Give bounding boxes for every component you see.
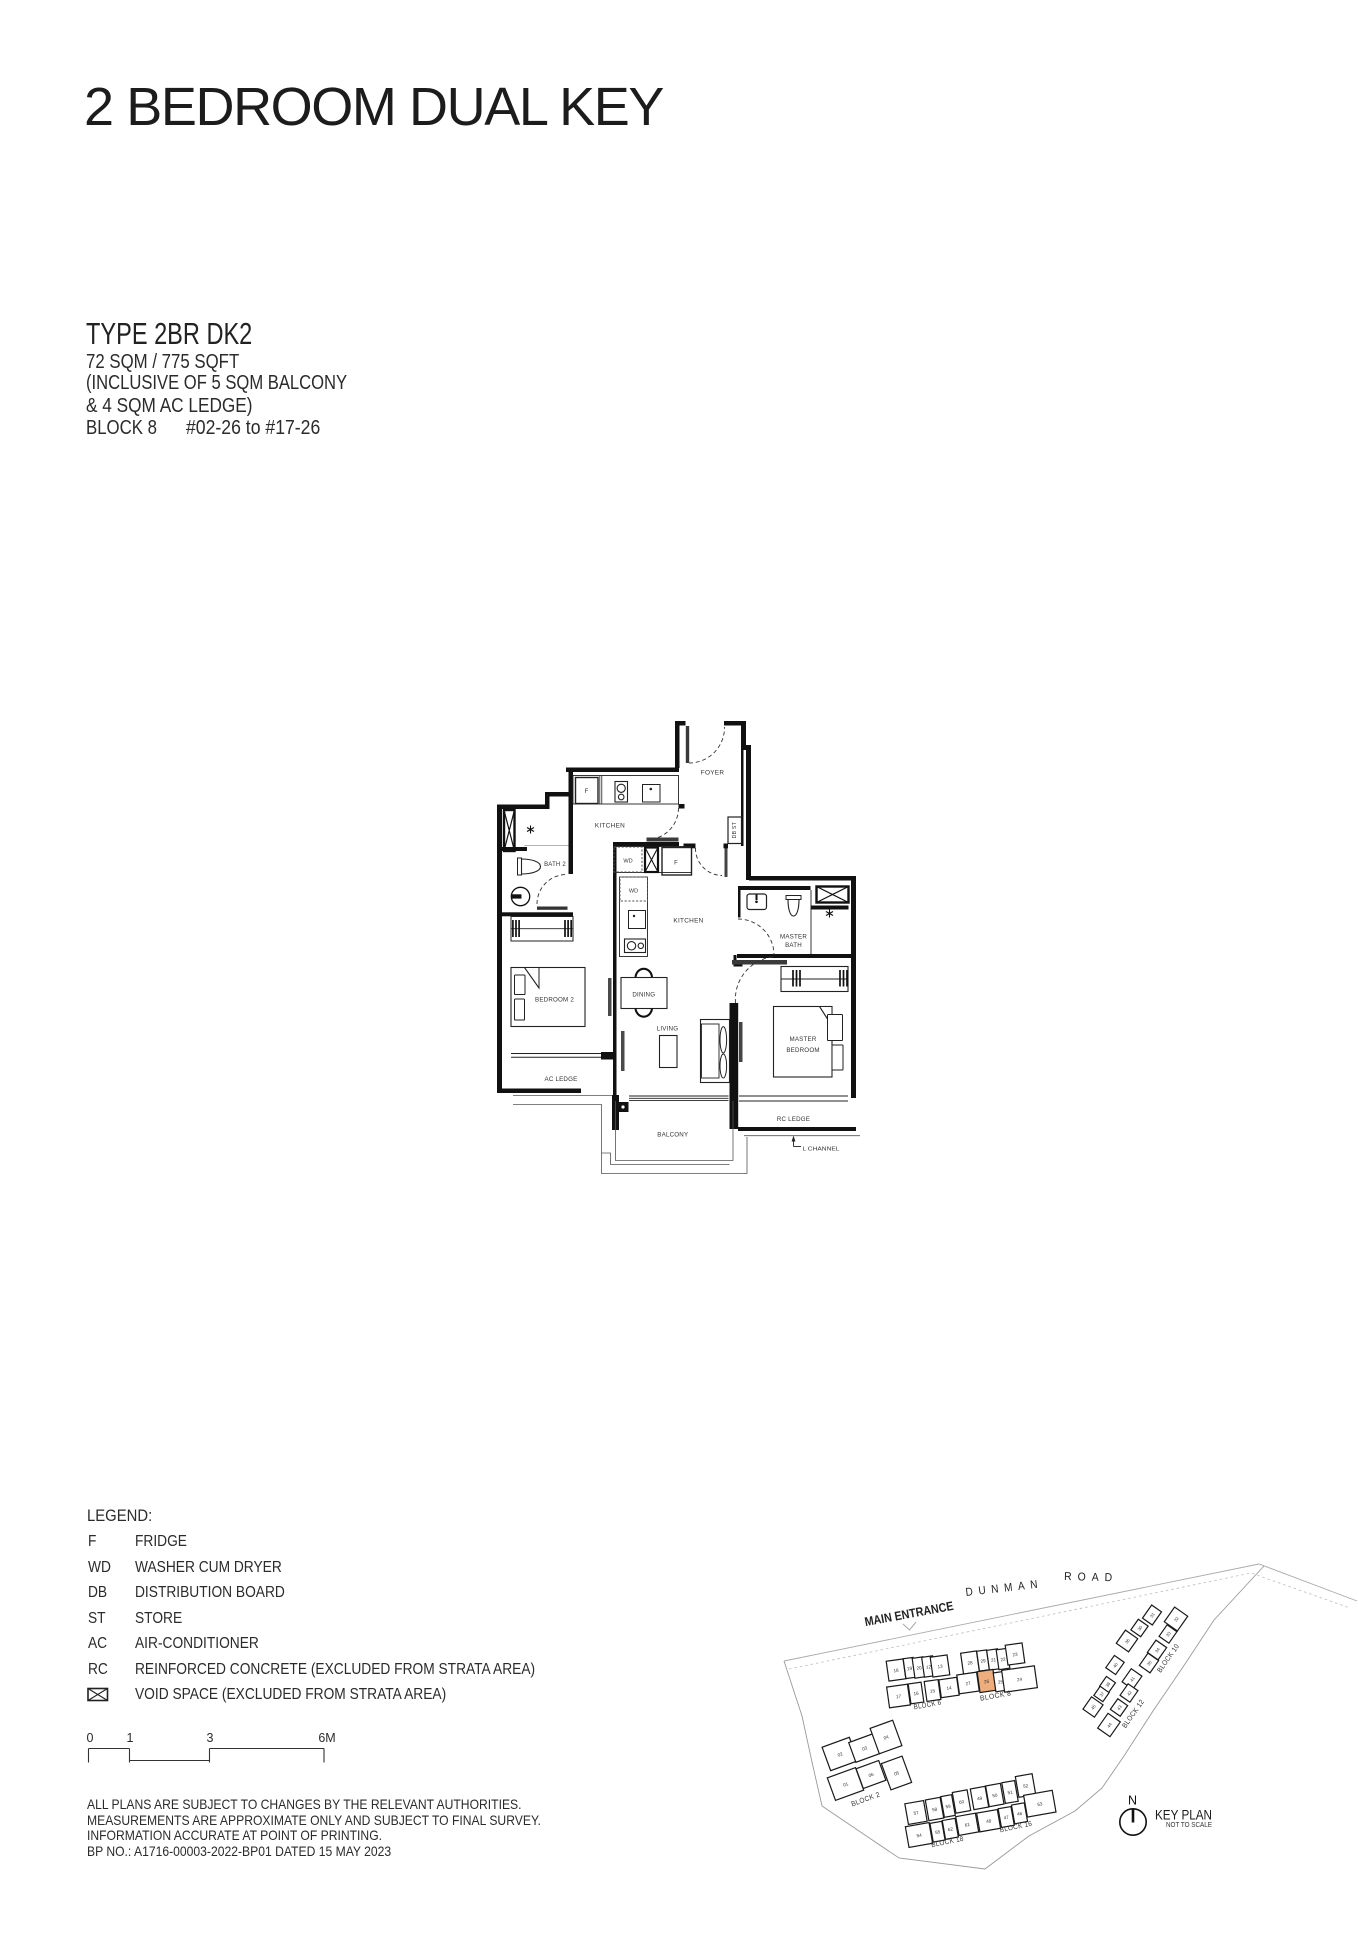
svg-text:RC LEDGE: RC LEDGE (777, 1116, 810, 1123)
svg-text:WD: WD (623, 859, 632, 865)
svg-text:6M: 6M (318, 1731, 335, 1745)
svg-text:DUNMAN: DUNMAN (965, 1578, 1044, 1599)
svg-text:BATH 2: BATH 2 (544, 862, 566, 868)
svg-text:NOT TO SCALE: NOT TO SCALE (1166, 1820, 1212, 1829)
svg-text:L CHANNEL: L CHANNEL (803, 1147, 841, 1153)
svg-text:KITCHEN: KITCHEN (595, 823, 625, 830)
svg-text:LIVING: LIVING (657, 1026, 679, 1033)
svg-text:BALCONY: BALCONY (657, 1132, 688, 1139)
svg-text:F: F (585, 788, 589, 795)
svg-text:BEDROOM: BEDROOM (786, 1047, 819, 1054)
svg-text:BEDROOM 2: BEDROOM 2 (535, 997, 574, 1004)
svg-text:MASTER: MASTER (790, 1036, 817, 1043)
svg-text:DINING: DINING (632, 992, 655, 999)
svg-text:F: F (674, 861, 678, 867)
svg-text:1: 1 (127, 1731, 134, 1745)
svg-text:DB ST: DB ST (732, 821, 738, 838)
svg-text:0: 0 (87, 1731, 94, 1745)
svg-text:FOYER: FOYER (701, 770, 725, 777)
svg-text:3: 3 (207, 1731, 214, 1745)
svg-text:ROAD: ROAD (1064, 1571, 1118, 1584)
svg-text:MASTER: MASTER (780, 934, 807, 941)
svg-text:MAIN ENTRANCE: MAIN ENTRANCE (863, 1599, 954, 1629)
svg-text:N: N (1128, 1794, 1137, 1808)
svg-text:KITCHEN: KITCHEN (673, 918, 703, 925)
svg-text:AC LEDGE: AC LEDGE (545, 1076, 578, 1083)
svg-text:WD: WD (629, 889, 638, 895)
svg-text:BATH: BATH (785, 942, 802, 949)
